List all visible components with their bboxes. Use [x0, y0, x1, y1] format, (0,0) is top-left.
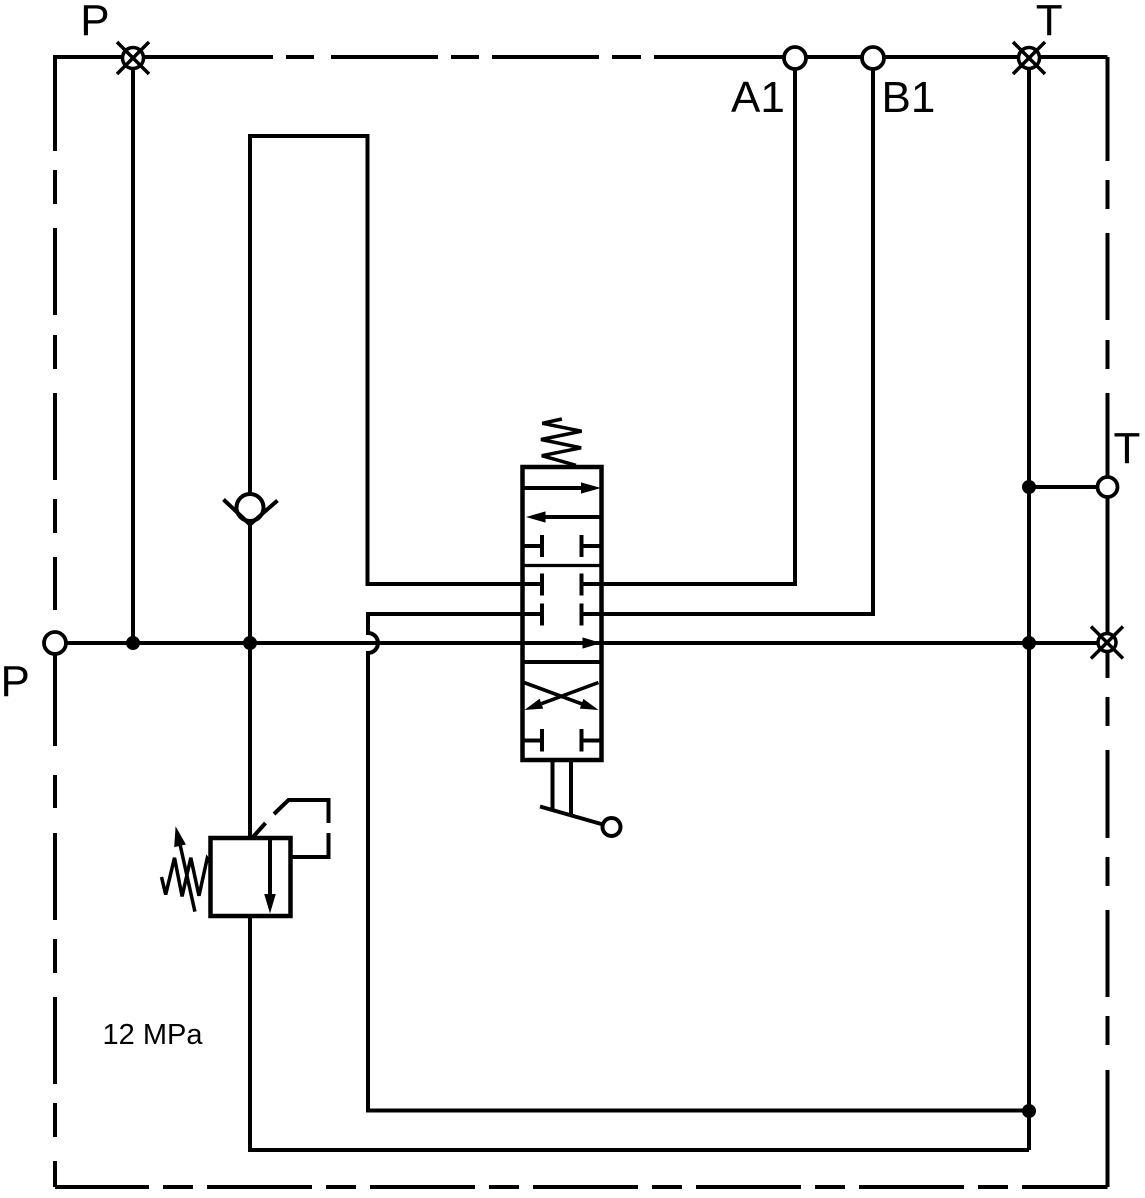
svg-text:B1: B1	[882, 73, 936, 122]
svg-text:P: P	[1, 657, 30, 706]
svg-text:12 MPa: 12 MPa	[103, 1019, 204, 1051]
svg-text:P: P	[80, 0, 109, 45]
svg-text:A1: A1	[731, 73, 785, 122]
svg-text:T: T	[1036, 0, 1063, 45]
svg-text:T: T	[1114, 424, 1141, 473]
